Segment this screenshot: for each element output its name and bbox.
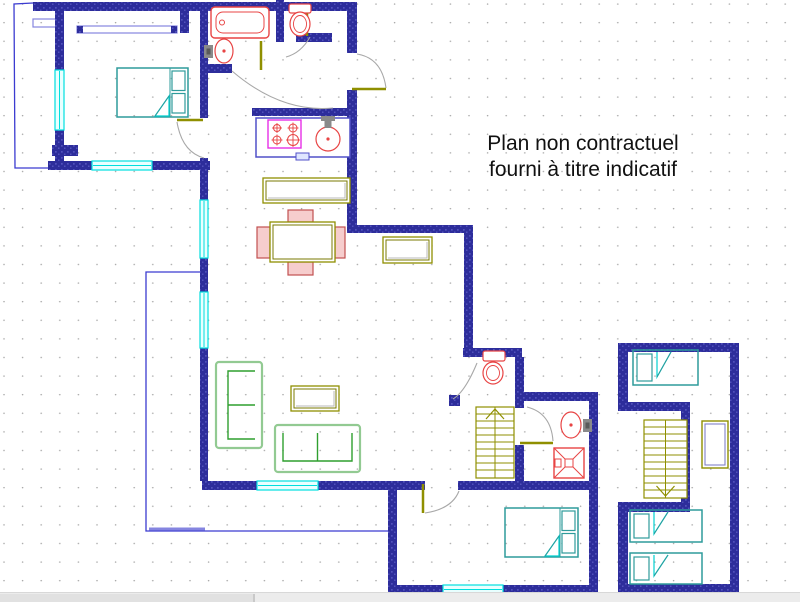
wall-segment xyxy=(200,258,208,292)
wall-segment xyxy=(202,481,257,490)
wall-segment xyxy=(347,225,473,233)
wall-segment xyxy=(200,64,232,73)
counter-tab xyxy=(296,153,309,160)
faucet-icon xyxy=(586,423,590,429)
basin-drain xyxy=(326,137,329,140)
pillow xyxy=(562,511,575,531)
scrollbar-thumb[interactable] xyxy=(0,594,255,602)
wall-segment xyxy=(200,2,208,118)
plan-disclaimer-line2: fourni à titre indicatif xyxy=(468,157,698,183)
wall-segment xyxy=(458,481,593,490)
pillow xyxy=(634,514,649,538)
window xyxy=(200,292,208,348)
wall-segment xyxy=(524,392,590,401)
dining-chair xyxy=(288,262,313,275)
wall-segment xyxy=(200,348,208,481)
wall-segment xyxy=(48,161,92,170)
staircase-down xyxy=(644,420,687,498)
tv-cabinet xyxy=(383,237,432,263)
pillow xyxy=(634,557,649,580)
bathtub xyxy=(211,7,269,38)
shower-drain xyxy=(565,459,573,467)
shower-valve xyxy=(555,459,561,467)
wall-segment xyxy=(318,481,425,490)
dining-chair xyxy=(288,210,313,222)
pillow xyxy=(562,534,575,554)
shelf-cabinet xyxy=(702,421,728,468)
dining-chair xyxy=(335,227,345,258)
floor-plan-canvas: Plan non contractuel fourni à titre indi… xyxy=(0,0,800,602)
shelf-cabinet-outer xyxy=(702,421,728,468)
wall-segment xyxy=(77,26,83,33)
wall-segment xyxy=(347,2,357,53)
wall-segment xyxy=(180,2,189,33)
faucet-icon xyxy=(325,120,332,128)
plan-disclaimer-line1: Plan non contractuel xyxy=(468,131,698,157)
pillow xyxy=(637,354,652,381)
wall-segment xyxy=(347,90,357,229)
wall-segment xyxy=(388,490,397,594)
table-top xyxy=(270,222,335,262)
wall-segment xyxy=(276,0,284,42)
wall-segment xyxy=(618,502,628,593)
coffee-table-outer xyxy=(291,386,339,411)
wall-segment xyxy=(730,343,739,593)
wall-segment xyxy=(55,2,64,70)
plan-disclaimer: Plan non contractuel fourni à titre indi… xyxy=(468,131,698,183)
basin-drain xyxy=(222,49,225,52)
horizontal-scrollbar[interactable] xyxy=(0,592,800,602)
faucet-icon xyxy=(207,49,211,55)
wall-segment xyxy=(171,26,177,33)
window xyxy=(92,161,152,170)
floor-plan-drawing xyxy=(0,0,800,602)
dining-chair xyxy=(257,227,270,258)
pillow xyxy=(172,71,185,91)
coffee-table xyxy=(291,386,339,411)
toilet xyxy=(289,4,311,36)
wall-segment xyxy=(52,145,78,156)
wall-segment xyxy=(621,402,689,411)
wall-segment xyxy=(200,158,208,200)
wall-segment xyxy=(515,357,524,408)
toilet xyxy=(483,351,505,384)
wall-segment xyxy=(618,343,628,411)
basin-drain xyxy=(569,423,572,426)
window xyxy=(55,70,64,130)
sideboard-outer xyxy=(263,178,350,203)
window xyxy=(200,200,208,258)
toilet-tank xyxy=(483,351,505,361)
wall-segment xyxy=(449,395,460,406)
wall-segment xyxy=(464,233,473,357)
sideboard xyxy=(263,178,350,203)
wall-segment xyxy=(515,445,524,482)
wall-segment xyxy=(252,108,347,116)
shower xyxy=(554,448,584,478)
tv-cabinet-outer xyxy=(383,237,432,263)
window xyxy=(257,481,318,490)
pillow xyxy=(172,94,185,114)
staircase-up xyxy=(476,407,514,478)
